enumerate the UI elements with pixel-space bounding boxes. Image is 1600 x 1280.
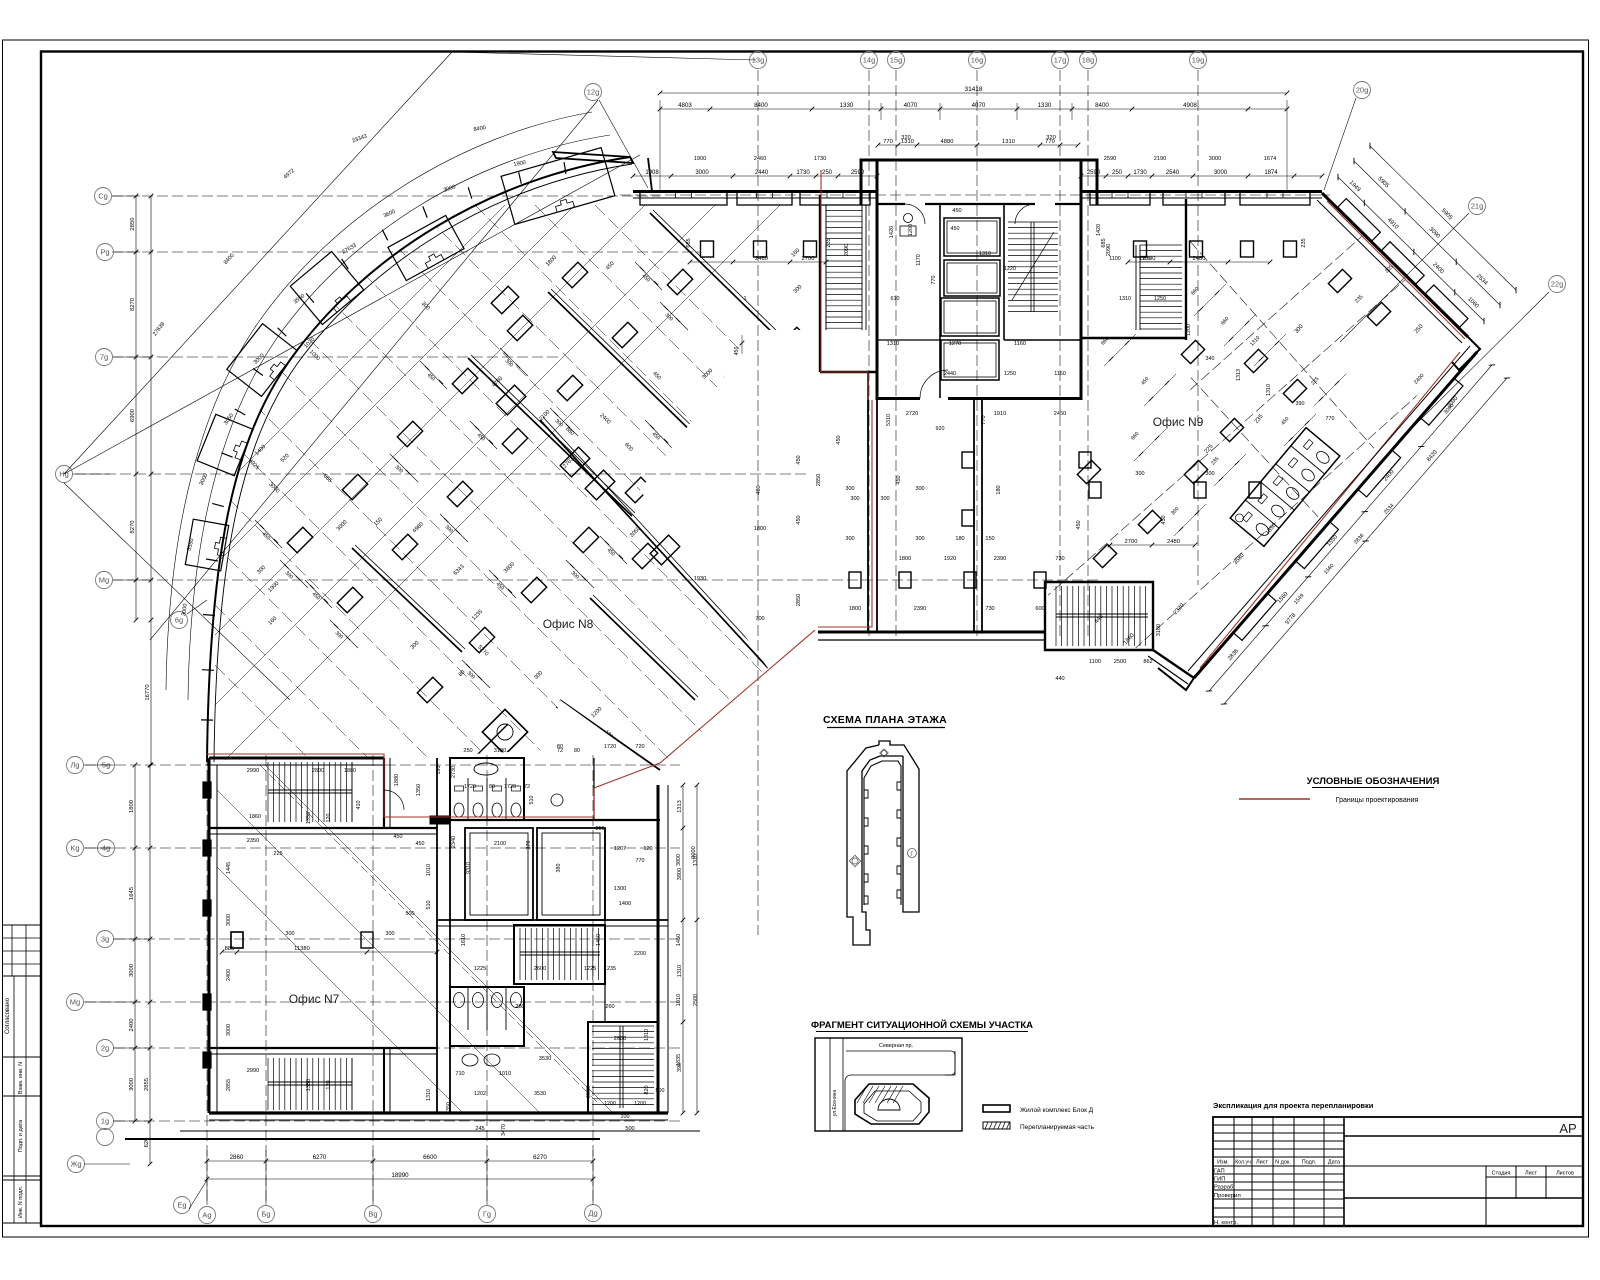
svg-text:3180: 3180 (494, 748, 506, 754)
svg-text:1720: 1720 (604, 744, 616, 750)
svg-text:2390: 2390 (914, 606, 926, 612)
svg-text:1g: 1g (101, 1117, 109, 1126)
svg-text:1920: 1920 (944, 556, 956, 562)
svg-text:2450: 2450 (1054, 411, 1066, 417)
svg-text:180: 180 (996, 485, 1002, 494)
svg-text:1880: 1880 (344, 768, 356, 774)
svg-text:3530: 3530 (539, 1056, 551, 1062)
svg-text:1310: 1310 (426, 1089, 432, 1101)
svg-text:1225: 1225 (474, 966, 486, 972)
svg-text:1445: 1445 (226, 862, 232, 874)
svg-text:Жg: Жg (70, 1160, 81, 1169)
svg-text:1800: 1800 (849, 606, 861, 612)
svg-text:2850: 2850 (816, 474, 822, 486)
svg-text:1800: 1800 (129, 800, 135, 813)
svg-text:730: 730 (1055, 556, 1064, 562)
svg-text:3000: 3000 (129, 1078, 135, 1091)
svg-text:15g: 15g (890, 56, 903, 65)
svg-text:1100: 1100 (1089, 659, 1101, 665)
svg-text:2090: 2090 (844, 244, 850, 256)
svg-text:450: 450 (394, 834, 403, 840)
svg-text:300: 300 (285, 931, 294, 937)
svg-text:1450: 1450 (676, 934, 682, 946)
svg-text:410: 410 (356, 801, 362, 810)
svg-text:250: 250 (1112, 170, 1123, 176)
svg-text:1400: 1400 (619, 901, 631, 907)
svg-text:1313: 1313 (677, 800, 683, 812)
svg-text:2600: 2600 (614, 1036, 626, 1042)
svg-text:300: 300 (845, 486, 854, 492)
svg-text:3470: 3470 (501, 1124, 507, 1136)
svg-text:390: 390 (1296, 401, 1305, 407)
svg-text:2590: 2590 (1104, 156, 1116, 162)
svg-text:920: 920 (936, 426, 945, 432)
svg-text:685: 685 (686, 238, 692, 247)
svg-text:300: 300 (1205, 471, 1214, 477)
svg-text:1350: 1350 (306, 1079, 312, 1091)
svg-text:Офис N7: Офис N7 (289, 992, 340, 1006)
svg-text:225: 225 (273, 851, 282, 857)
svg-text:22g: 22g (1551, 280, 1564, 289)
svg-text:4880: 4880 (941, 139, 954, 145)
svg-text:150: 150 (985, 536, 994, 542)
svg-text:2g: 2g (101, 1044, 109, 1053)
svg-text:Границы проектирования: Границы проектирования (1336, 797, 1419, 804)
svg-text:2480: 2480 (1193, 256, 1206, 262)
svg-text:1730: 1730 (1133, 170, 1147, 176)
svg-text:2720: 2720 (906, 411, 918, 417)
svg-text:18g: 18g (1082, 56, 1095, 65)
svg-text:Инв. N подл.: Инв. N подл. (18, 1185, 24, 1218)
svg-text:2855: 2855 (226, 1079, 232, 1091)
svg-text:3000: 3000 (226, 914, 232, 926)
svg-text:1310: 1310 (677, 965, 683, 977)
svg-text:2390: 2390 (994, 556, 1006, 562)
svg-text:250: 250 (596, 826, 605, 832)
svg-text:2035: 2035 (586, 1086, 592, 1098)
svg-text:700: 700 (755, 616, 764, 622)
svg-text:2850: 2850 (130, 218, 136, 231)
svg-text:1200: 1200 (604, 1101, 616, 1107)
svg-text:500: 500 (656, 1088, 665, 1094)
svg-text:Листов: Листов (1556, 1171, 1574, 1177)
svg-text:УСЛОВНЫЕ ОБОЗНАЧЕНИЯ: УСЛОВНЫЕ ОБОЗНАЧЕНИЯ (1307, 776, 1440, 787)
svg-text:1310: 1310 (979, 251, 991, 257)
svg-text:3000: 3000 (226, 1024, 232, 1036)
svg-text:770: 770 (1326, 416, 1335, 422)
svg-text:1645: 1645 (129, 887, 135, 900)
svg-text:450: 450 (796, 455, 802, 464)
svg-text:19g: 19g (1192, 56, 1205, 65)
svg-text:1310: 1310 (1266, 384, 1272, 396)
svg-text:862: 862 (1143, 659, 1152, 665)
svg-text:195: 195 (436, 766, 442, 775)
svg-text:2350: 2350 (247, 838, 259, 844)
svg-text:Проверил: Проверил (1214, 1193, 1241, 1199)
svg-text:610: 610 (891, 296, 900, 302)
svg-text:2855: 2855 (144, 1078, 150, 1091)
svg-text:4908: 4908 (1183, 102, 1197, 109)
svg-text:770: 770 (981, 415, 987, 424)
svg-text:440: 440 (1055, 676, 1064, 682)
svg-text:2600: 2600 (534, 966, 546, 972)
svg-text:820: 820 (644, 1085, 650, 1094)
svg-text:1330: 1330 (1038, 102, 1052, 109)
svg-text:320: 320 (901, 135, 911, 141)
svg-text:730: 730 (985, 606, 994, 612)
svg-text:710: 710 (455, 1071, 464, 1077)
svg-text:180: 180 (955, 536, 964, 542)
svg-text:18990: 18990 (391, 1172, 409, 1179)
svg-text:720: 720 (635, 744, 644, 750)
svg-text:2860: 2860 (230, 1154, 244, 1161)
svg-text:Вg: Вg (368, 1210, 377, 1219)
svg-text:11380: 11380 (294, 946, 310, 952)
svg-text:6270: 6270 (313, 1154, 327, 1161)
svg-text:250: 250 (463, 748, 472, 754)
svg-text:2100: 2100 (494, 841, 506, 847)
svg-text:1450: 1450 (596, 934, 602, 946)
svg-text:450: 450 (896, 475, 902, 484)
svg-text:300: 300 (385, 931, 394, 937)
svg-text:260: 260 (605, 1004, 614, 1010)
svg-text:80: 80 (489, 784, 495, 790)
svg-text:1225: 1225 (584, 966, 596, 972)
svg-text:3000: 3000 (1214, 170, 1228, 176)
svg-text:ГИП: ГИП (1214, 1177, 1225, 1183)
svg-text:Лист: Лист (1256, 1160, 1268, 1166)
svg-text:Взам. инв. N: Взам. инв. N (18, 1062, 24, 1094)
svg-text:1160: 1160 (1054, 371, 1066, 377)
svg-text:500: 500 (625, 1126, 634, 1132)
svg-text:ул.Есенина: ул.Есенина (832, 1090, 838, 1117)
svg-text:770: 770 (883, 139, 893, 145)
svg-text:1860: 1860 (249, 814, 261, 820)
svg-text:1200: 1200 (1186, 324, 1192, 336)
svg-text:450: 450 (416, 841, 425, 847)
svg-text:1930: 1930 (694, 576, 706, 582)
svg-text:1310: 1310 (1002, 139, 1015, 145)
svg-text:2400: 2400 (129, 1019, 135, 1032)
svg-text:СХЕМА ПЛАНА ЭТАЖА: СХЕМА ПЛАНА ЭТАЖА (823, 714, 947, 726)
svg-text:1420: 1420 (1096, 224, 1102, 236)
svg-text:Стадия: Стадия (1492, 1171, 1511, 1177)
svg-text:2990: 2990 (247, 768, 259, 774)
svg-text:2460: 2460 (754, 156, 766, 162)
svg-text:1160: 1160 (1014, 341, 1026, 347)
svg-text:Hg: Hg (59, 470, 69, 479)
svg-text:380: 380 (556, 864, 562, 873)
svg-text:120: 120 (643, 846, 652, 852)
svg-text:1350: 1350 (416, 784, 422, 796)
svg-text:1200: 1200 (908, 224, 914, 236)
svg-text:1420: 1420 (889, 226, 895, 238)
svg-text:7g: 7g (100, 353, 108, 362)
svg-text:450: 450 (1161, 515, 1167, 524)
svg-text:1270: 1270 (949, 341, 961, 347)
svg-text:300: 300 (850, 496, 859, 502)
svg-text:3100: 3100 (1156, 624, 1162, 636)
svg-text:4070: 4070 (904, 102, 918, 109)
svg-text:2190: 2190 (1154, 156, 1166, 162)
svg-text:300: 300 (1135, 471, 1144, 477)
svg-text:Экспликация для проекта пер: Экспликация для проекта перепланировки (1213, 1101, 1374, 1110)
svg-text:72: 72 (524, 784, 530, 790)
svg-text:6270: 6270 (533, 1154, 547, 1161)
svg-text:2500: 2500 (1114, 659, 1126, 665)
svg-text:1310: 1310 (644, 1029, 650, 1041)
svg-text:770: 770 (931, 276, 937, 285)
svg-text:6900: 6900 (130, 409, 136, 422)
svg-text:1310: 1310 (1119, 296, 1131, 302)
svg-text:2730: 2730 (451, 766, 457, 778)
svg-text:Лg: Лg (70, 761, 79, 770)
svg-text:12g: 12g (587, 88, 600, 97)
svg-text:Северная пр.: Северная пр. (879, 1043, 914, 1049)
svg-text:Жилой комплекс Блок Д: Жилой комплекс Блок Д (1020, 1106, 1094, 1114)
svg-text:Eg: Eg (177, 1201, 186, 1210)
svg-text:2440: 2440 (755, 170, 769, 176)
svg-text:1835: 1835 (676, 1054, 682, 1066)
svg-text:1674: 1674 (1264, 156, 1276, 162)
svg-text:2440: 2440 (944, 371, 956, 377)
svg-text:100: 100 (621, 1114, 630, 1120)
svg-text:3530: 3530 (534, 1091, 546, 1097)
svg-text:235: 235 (1301, 238, 1307, 247)
svg-text:Kg: Kg (70, 844, 79, 853)
svg-text:Офис N8: Офис N8 (543, 617, 594, 631)
svg-text:1610: 1610 (461, 934, 467, 946)
svg-text:1350: 1350 (446, 1102, 452, 1114)
svg-text:2590: 2590 (1087, 170, 1101, 176)
svg-text:1874: 1874 (1264, 170, 1278, 176)
svg-text:Mg: Mg (99, 576, 109, 585)
svg-text:1730: 1730 (796, 170, 810, 176)
svg-text:1300: 1300 (614, 886, 626, 892)
svg-text:Изм.: Изм. (1217, 1160, 1229, 1166)
svg-text:685: 685 (1101, 238, 1107, 247)
svg-text:2590: 2590 (851, 170, 865, 176)
svg-text:1310: 1310 (693, 854, 699, 866)
svg-text:2850: 2850 (796, 594, 802, 606)
svg-text:ГАП: ГАП (1214, 1169, 1225, 1175)
svg-text:235: 235 (826, 238, 832, 247)
svg-text:120: 120 (326, 1080, 332, 1089)
svg-text:340: 340 (1206, 356, 1215, 362)
svg-text:Офис N9: Офис N9 (1153, 415, 1204, 429)
svg-text:1250: 1250 (1004, 371, 1016, 377)
svg-text:Подп. и дата: Подп. и дата (18, 1119, 24, 1152)
svg-text:1313: 1313 (1236, 369, 1242, 381)
svg-text:20g: 20g (1356, 86, 1369, 95)
svg-text:1202: 1202 (474, 1091, 486, 1097)
svg-text:250: 250 (822, 170, 833, 176)
svg-text:300: 300 (915, 486, 924, 492)
svg-text:1908: 1908 (645, 170, 659, 176)
svg-text:1330: 1330 (840, 102, 854, 109)
svg-text:600: 600 (1035, 606, 1044, 612)
svg-text:72: 72 (557, 748, 563, 754)
svg-text:14g: 14g (863, 56, 876, 65)
svg-text:2340: 2340 (451, 836, 457, 848)
svg-text:16770: 16770 (145, 684, 151, 700)
svg-text:1310: 1310 (887, 341, 899, 347)
svg-text:1220: 1220 (1004, 266, 1016, 272)
svg-text:2700: 2700 (1125, 539, 1138, 545)
svg-text:1010: 1010 (426, 864, 432, 876)
svg-text:1720: 1720 (464, 784, 476, 790)
svg-text:2990: 2990 (247, 1068, 259, 1074)
svg-text:3800: 3800 (676, 854, 682, 866)
svg-text:2400: 2400 (226, 969, 232, 981)
svg-text:2200: 2200 (634, 951, 646, 957)
svg-text:2480: 2480 (755, 256, 768, 262)
svg-text:1800: 1800 (754, 526, 766, 532)
svg-text:1170: 1170 (916, 254, 922, 266)
svg-text:245: 245 (475, 1126, 484, 1132)
svg-text:6g: 6g (175, 616, 183, 625)
svg-text:450: 450 (796, 515, 802, 524)
svg-text:8400: 8400 (1095, 102, 1109, 109)
svg-text:Лист: Лист (1525, 1171, 1537, 1177)
svg-text:Согласовано: Согласовано (5, 997, 11, 1034)
svg-text:320: 320 (1046, 135, 1056, 141)
svg-text:Н. контр.: Н. контр. (1214, 1220, 1238, 1226)
svg-text:4803: 4803 (678, 102, 692, 109)
svg-text:8270: 8270 (130, 521, 136, 534)
svg-text:Перепланируемая часть: Перепланируемая часть (1020, 1124, 1095, 1131)
svg-text:370: 370 (526, 841, 532, 850)
svg-text:8270: 8270 (130, 298, 136, 311)
svg-text:450: 450 (951, 226, 960, 232)
svg-text:510: 510 (426, 900, 432, 909)
svg-text:80: 80 (574, 748, 580, 754)
svg-text:1: 1 (743, 296, 746, 302)
svg-text:2500: 2500 (693, 994, 699, 1006)
svg-text:Подп.: Подп. (1302, 1160, 1317, 1166)
svg-text:16g: 16g (971, 56, 984, 65)
svg-text:Pg: Pg (100, 248, 109, 257)
svg-text:1800: 1800 (899, 556, 911, 562)
svg-text:ФРАГМЕНТ СИТУАЦИОННОЙ СХЕМЫ: ФРАГМЕНТ СИТУАЦИОННОЙ СХЕМЫ УЧАСТКА (811, 1019, 1033, 1031)
svg-text:21g: 21g (1471, 202, 1484, 211)
svg-text:2700: 2700 (802, 256, 815, 262)
svg-text:1910: 1910 (994, 411, 1006, 417)
svg-text:450: 450 (952, 208, 961, 214)
svg-text:АР: АР (1559, 1121, 1576, 1136)
svg-text:885: 885 (225, 946, 235, 952)
svg-text:1900: 1900 (694, 156, 706, 162)
svg-text:450: 450 (836, 435, 842, 444)
svg-text:1200: 1200 (634, 1101, 646, 1107)
svg-text:2800: 2800 (312, 768, 324, 774)
svg-text:510: 510 (529, 796, 535, 805)
svg-text:1100: 1100 (1139, 256, 1151, 262)
svg-text:300: 300 (915, 536, 924, 542)
svg-text:300: 300 (880, 496, 889, 502)
svg-text:N док.: N док. (1275, 1160, 1291, 1166)
svg-text:2480: 2480 (1167, 539, 1180, 545)
svg-text:500: 500 (406, 911, 415, 917)
svg-text:3800: 3800 (677, 868, 683, 880)
svg-text:1350: 1350 (306, 812, 312, 824)
svg-text:3000: 3000 (695, 170, 709, 176)
svg-text:4070: 4070 (972, 102, 986, 109)
svg-text:Дата: Дата (1328, 1160, 1341, 1166)
svg-text:1730: 1730 (814, 156, 826, 162)
svg-text:120: 120 (326, 814, 332, 823)
svg-text:2540: 2540 (1166, 170, 1180, 176)
svg-text:1880: 1880 (394, 774, 400, 786)
svg-text:1250: 1250 (1154, 296, 1166, 302)
svg-text:1235: 1235 (604, 966, 616, 972)
svg-text:1010: 1010 (499, 1071, 511, 1077)
svg-text:3000: 3000 (129, 964, 135, 977)
svg-text:Mg: Mg (70, 998, 80, 1007)
svg-text:8400: 8400 (754, 102, 768, 109)
svg-text:300: 300 (845, 536, 854, 542)
svg-text:1010: 1010 (676, 994, 682, 1006)
svg-text:5310: 5310 (886, 414, 892, 426)
svg-text:Дg: Дg (588, 1209, 597, 1218)
svg-text:9310: 9310 (466, 862, 472, 874)
svg-text:17g: 17g (1054, 56, 1067, 65)
svg-text:770: 770 (636, 858, 645, 864)
svg-text:Бg: Бg (261, 1210, 270, 1219)
svg-text:1207: 1207 (614, 846, 626, 852)
svg-text:3g: 3g (101, 935, 109, 944)
svg-text:1100: 1100 (1109, 256, 1121, 262)
svg-text:Разраб.: Разраб. (1214, 1185, 1235, 1191)
svg-text:280: 280 (515, 1004, 524, 1010)
svg-text:450: 450 (734, 347, 740, 356)
svg-text:3000: 3000 (1209, 156, 1221, 162)
svg-text:Cg: Cg (98, 192, 108, 201)
svg-text:Гg: Гg (483, 1210, 491, 1219)
svg-text:480: 480 (756, 485, 762, 494)
svg-text:31418: 31418 (964, 86, 982, 93)
svg-text:450: 450 (1076, 520, 1082, 529)
svg-text:Кол.уч: Кол.уч (1235, 1160, 1251, 1166)
svg-text:6600: 6600 (423, 1154, 437, 1161)
svg-text:1720: 1720 (504, 784, 516, 790)
svg-text:Аg: Аg (202, 1211, 211, 1220)
